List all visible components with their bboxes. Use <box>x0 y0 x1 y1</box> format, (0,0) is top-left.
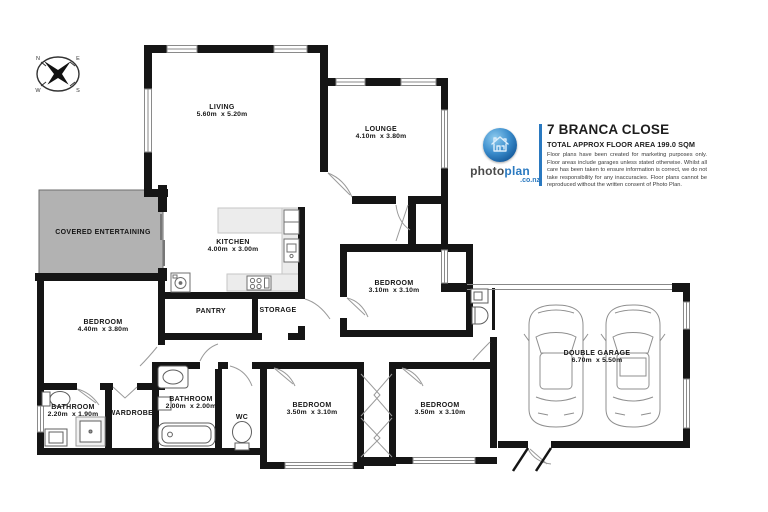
cars <box>524 305 665 427</box>
garage-door-line <box>467 285 672 290</box>
sink-icon <box>284 239 299 262</box>
room-label-covered-entertaining: COVERED ENTERTAINING <box>33 229 173 236</box>
room-label-double-garage: DOUBLE GARAGE 6.70m x 5.50m <box>564 350 631 364</box>
compass-w: W <box>35 88 41 94</box>
ensuite-toilet-icon <box>472 307 488 324</box>
vanity-icon <box>45 429 67 446</box>
compass-icon: N E S W <box>35 56 80 94</box>
title-block: photoplan .co.nz 7 BRANCA CLOSE TOTAL AP… <box>466 120 716 200</box>
car-icon <box>524 305 588 427</box>
disclaimer-text: Floor plans have been created for market… <box>547 152 707 190</box>
room-label-lounge: LOUNGE 4.10m x 3.80m <box>356 126 407 140</box>
room-label-bedroom-bottom-right: BEDROOM 3.50m x 3.10m <box>415 402 466 416</box>
room-label-bedroom-mid: BEDROOM 3.10m x 3.10m <box>369 280 420 294</box>
room-label-pantry: PANTRY <box>196 308 226 315</box>
logo-word-photo: photo <box>470 164 504 178</box>
compass-e: E <box>76 56 80 62</box>
room-label-bedroom-left: BEDROOM 4.40m x 3.80m <box>78 319 129 333</box>
floorplan-canvas: N E S W LIVING 5.60m x 5.20m LOUNGE 4.10… <box>0 0 768 512</box>
compass-s: S <box>76 88 80 94</box>
oven-icon <box>171 273 190 292</box>
property-address: 7 BRANCA CLOSE <box>547 122 707 137</box>
stove-icon <box>247 276 271 290</box>
ensuite-sink-icon <box>471 289 488 303</box>
floor-area-line: TOTAL APPROX FLOOR AREA 199.0 SQM <box>547 140 707 149</box>
entry-porch <box>513 448 551 471</box>
house-icon <box>483 128 517 162</box>
logo-word-plan: plan <box>504 164 529 178</box>
car-icon <box>601 305 665 427</box>
logo-domain: .co.nz <box>460 177 540 184</box>
room-label-living: LIVING 5.60m x 5.20m <box>197 104 248 118</box>
wc-toilet-icon <box>233 422 252 451</box>
room-label-wc: WC <box>236 414 248 421</box>
compass-n: N <box>36 56 40 62</box>
photoplan-logo-icon <box>483 128 517 162</box>
room-label-bathroom1: BATHROOM 2.20m x 1.90m <box>48 404 99 418</box>
fridge-icon <box>284 210 299 234</box>
photoplan-wordmark: photoplan <box>460 164 540 178</box>
divider-bar <box>539 124 542 186</box>
room-label-kitchen: KITCHEN 4.00m x 3.00m <box>208 239 259 253</box>
room-label-wardrobe: WARDROBE <box>109 410 153 417</box>
room-label-storage: STORAGE <box>260 307 297 314</box>
bathtub-icon <box>158 423 215 446</box>
shower-icon <box>76 417 105 446</box>
floorplan-drawing: N E S W <box>0 0 768 512</box>
room-label-bathroom2: BATHROOM 2.00m x 2.00m <box>166 396 217 410</box>
room-label-bedroom-bottom-left: BEDROOM 3.50m x 3.10m <box>287 402 338 416</box>
